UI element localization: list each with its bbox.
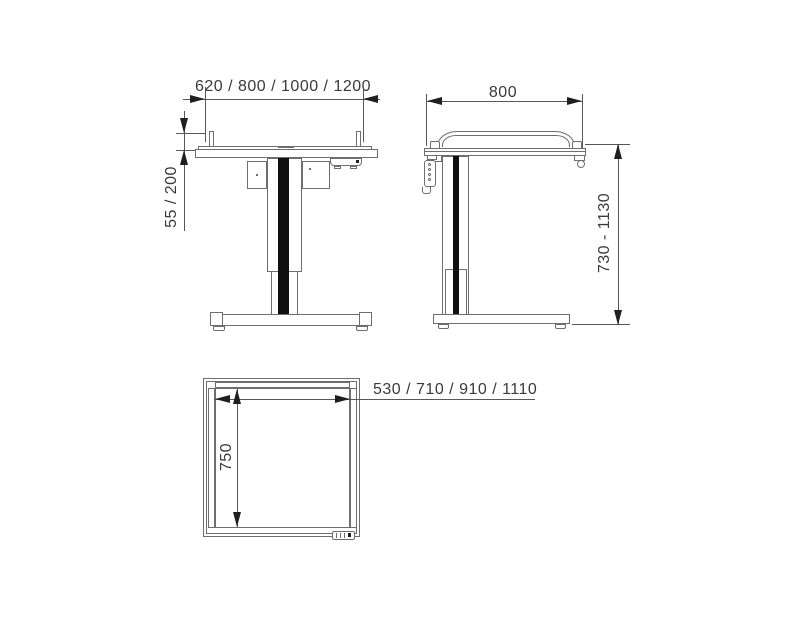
top-rail-left: [208, 388, 215, 528]
top-depth-arrow-up-icon: [233, 389, 241, 404]
top-depth-dimension-line: [237, 389, 238, 527]
technical-drawing-canvas: 620 / 800 / 1000 / 1200 55 / 200: [0, 0, 800, 618]
top-control-box-indicator: [348, 533, 351, 537]
top-clear-width-dimension-label: 530 / 710 / 910 / 1110: [373, 381, 537, 399]
top-depth-arrow-down-icon: [233, 512, 241, 527]
top-depth-dimension-label: 750: [218, 427, 236, 487]
top-control-box-vent-1: [336, 533, 337, 538]
top-clear-width-arrow-left-icon: [215, 395, 230, 403]
top-control-box-vent-2: [340, 533, 341, 538]
top-control-box-vent-3: [344, 533, 345, 538]
top-view: 530 / 710 / 910 / 1110 750: [0, 0, 800, 618]
top-rail-right: [350, 388, 357, 528]
top-clear-width-arrow-right-icon: [335, 395, 350, 403]
top-clear-width-dimension-line: [214, 399, 535, 400]
